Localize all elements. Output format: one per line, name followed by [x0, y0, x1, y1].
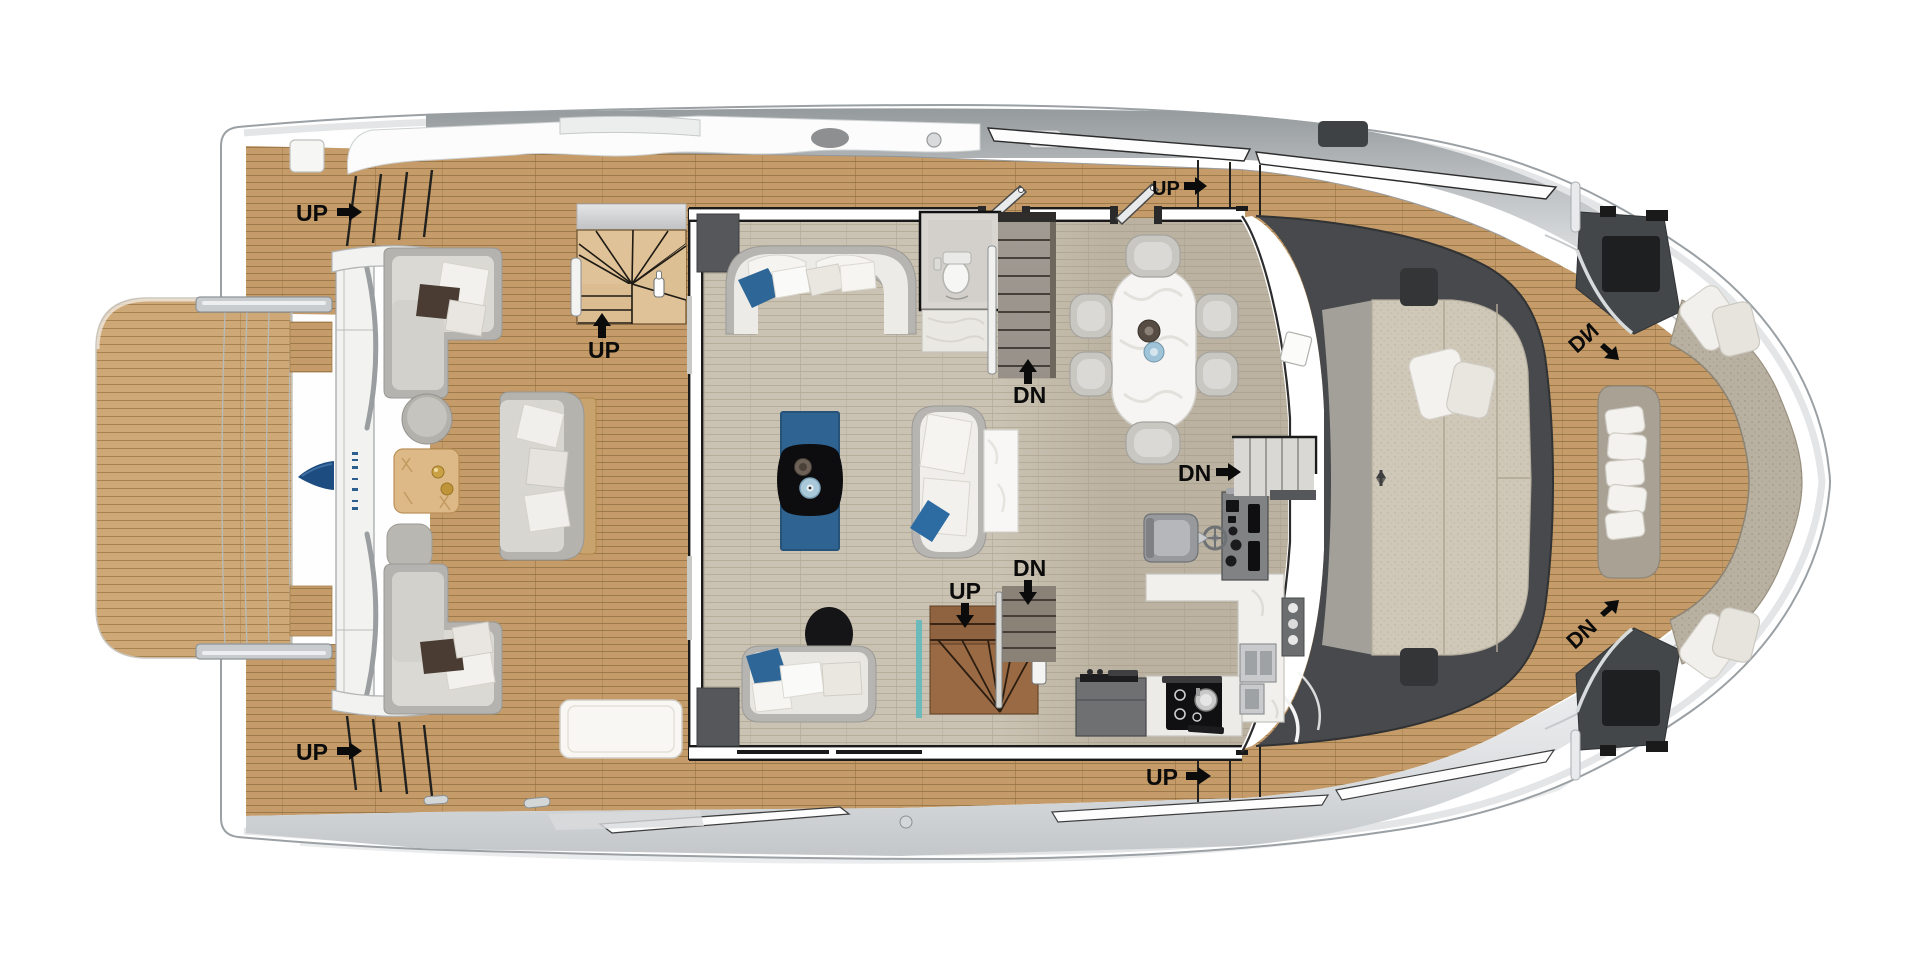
svg-text:DN: DN [1013, 382, 1046, 408]
svg-text:UP: UP [296, 739, 328, 765]
svg-text:UP: UP [1152, 178, 1180, 200]
svg-text:UP: UP [949, 578, 981, 604]
svg-text:DN: DN [1178, 460, 1211, 486]
svg-text:UP: UP [588, 337, 620, 363]
svg-text:UP: UP [1146, 764, 1178, 790]
svg-text:DN: DN [1013, 555, 1046, 581]
svg-text:UP: UP [296, 200, 328, 226]
